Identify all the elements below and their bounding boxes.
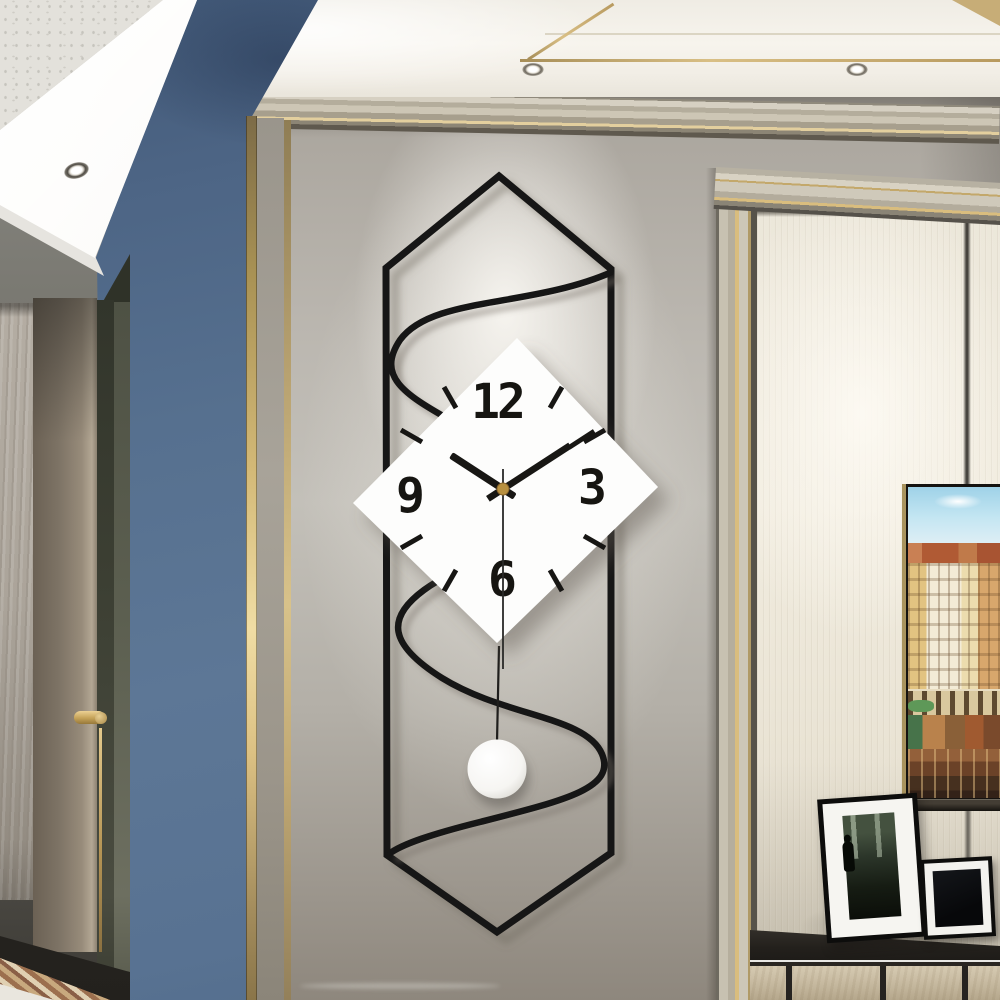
painting-shelf: [905, 799, 1000, 811]
ceiling-trim-line: [545, 33, 1000, 35]
panel-frame-molding-left: [716, 172, 757, 1000]
door-handle-rose: [95, 712, 107, 724]
sideboard-doors: [750, 960, 1000, 1000]
wall-return-face: [257, 118, 284, 1000]
painting-gondolas: [908, 749, 1000, 798]
painting-cloud: [934, 494, 982, 509]
painting-roofs: [908, 543, 1000, 563]
photo-frame-small: [920, 856, 996, 940]
painting-sky: [908, 487, 1000, 543]
venice-canal-painting: [902, 484, 1000, 802]
photo-frame-large: [817, 793, 927, 944]
recessed-spotlight: [843, 61, 871, 78]
painting-green-canopy: [908, 700, 934, 712]
numeral-12: 12: [471, 374, 523, 430]
ceiling-gold-trim: [520, 59, 1000, 62]
interior-scene: 12 3 6 9: [0, 0, 1000, 1000]
numeral-6: 6: [488, 552, 515, 608]
numeral-3: 3: [578, 460, 604, 516]
door-frame-inner: [114, 302, 130, 1000]
door-leaf: [33, 298, 97, 952]
pendulum-ball: [468, 740, 527, 799]
painting-buildings: [908, 563, 1000, 689]
corner-gold-trim: [246, 116, 257, 1000]
painting-market: [908, 715, 1000, 749]
clock-center-pin: [497, 483, 509, 495]
panel-seam: [963, 210, 971, 486]
wall-clock: 12 3 6 9: [300, 130, 700, 990]
recessed-spotlight: [519, 61, 547, 78]
photo-figure-body: [842, 841, 855, 872]
marble-wall-panel: [0, 303, 33, 900]
photo-dark: [933, 869, 984, 927]
door-edge-highlight: [99, 728, 102, 952]
numeral-9: 9: [396, 468, 422, 524]
wall-gold-trim: [284, 120, 291, 1000]
panel-frame-shadow: [706, 168, 716, 1000]
second-hand: [502, 469, 504, 669]
pendulum-rod: [497, 646, 499, 742]
